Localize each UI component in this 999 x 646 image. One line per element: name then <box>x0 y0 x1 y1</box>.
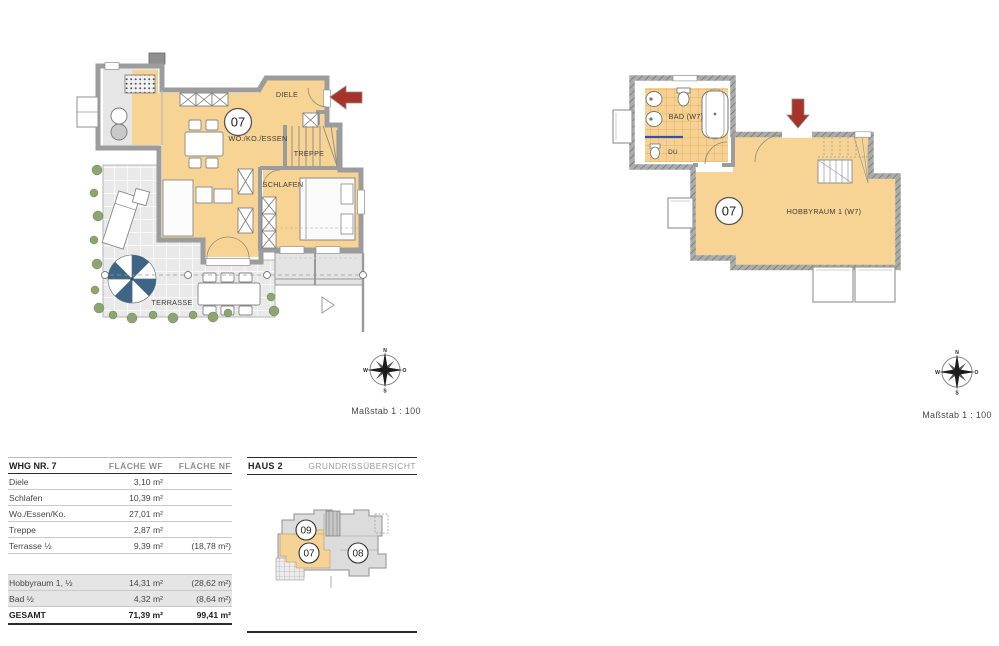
compass-star-main <box>367 352 403 388</box>
room-label-schlafen: SCHLAFEN <box>263 180 304 189</box>
kitchen-sink <box>111 108 127 124</box>
scale-label-left: Maßstab 1 : 100 <box>341 406 431 416</box>
area-table-wrap: WHG NR. 7 FLÄCHE WF FLÄCHE NF Diele 3,10… <box>8 457 232 625</box>
scale-label-right: Maßstab 1 : 100 <box>913 410 999 420</box>
mini-unit08-number: 08 <box>352 549 364 560</box>
row-wf: 14,31 m² <box>104 575 164 591</box>
row-wf: 9,39 m² <box>104 538 164 554</box>
room-label-hobbyraum: HOBBYRAUM 1 (W7) <box>787 207 862 216</box>
row-nf: (8,64 m²) <box>164 591 232 607</box>
side-table <box>132 188 149 205</box>
table-row: Diele 3,10 m² <box>8 474 232 490</box>
overview-header: HAUS 2 GRUNDRISSÜBERSICHT <box>247 457 417 475</box>
floor-plan-basement: 07 BAD (W7) DU HOBBYRAUM 1 (W7) <box>610 65 910 315</box>
room-label-bad: BAD (W7) <box>669 112 704 121</box>
compass-w: W <box>363 368 368 374</box>
compass-n: N <box>383 348 387 354</box>
section-marker-triangle <box>322 297 334 313</box>
table-spacer-row <box>8 554 232 575</box>
row-wf: 27,01 m² <box>104 506 164 522</box>
overview-panel: HAUS 2 GRUNDRISSÜBERSICHT <box>247 457 417 475</box>
row-label: Hobbyraum 1, ½ <box>8 575 104 591</box>
room-label-wohnen: WO./KO./ESSEN <box>228 134 287 143</box>
col-header-wf: FLÄCHE WF <box>104 458 164 474</box>
outdoor-dining <box>198 273 260 315</box>
compass-rose-right: N O S W <box>934 349 980 395</box>
table-row: Wo./Essen/Ko. 27,01 m² <box>8 506 232 522</box>
area-table: WHG NR. 7 FLÄCHE WF FLÄCHE NF Diele 3,10… <box>8 457 232 625</box>
row-wf: 4,32 m² <box>104 591 164 607</box>
overview-bottom-rule <box>247 631 417 633</box>
compass-rose-left: N O S W <box>362 347 408 393</box>
compass-n: N <box>955 350 959 356</box>
unit-badge-number: 07 <box>722 204 736 219</box>
total-nf: 99,41 m² <box>164 607 232 624</box>
overview-mini-plan: 09 07 08 <box>274 506 392 590</box>
entrance-arrow-icon <box>330 86 362 109</box>
row-wf: 10,39 m² <box>104 490 164 506</box>
room-label-du: DU <box>668 149 678 156</box>
toilet <box>677 88 690 106</box>
mini-unit07-number: 07 <box>303 549 315 560</box>
mini-unit09-number: 09 <box>300 526 312 537</box>
floor-plan-sheet: 07 DIELE WO./KO./ESSEN TREPPE SCHLAFEN T… <box>0 0 999 646</box>
room-label-diele: DIELE <box>276 90 298 99</box>
overview-title: HAUS 2 <box>248 461 283 471</box>
compass-w: W <box>935 370 940 376</box>
compass-star-main <box>939 354 975 390</box>
table-row: Bad ½ 4,32 m² (8,64 m²) <box>8 591 232 607</box>
col-header-nf: FLÄCHE NF <box>164 458 232 474</box>
row-label: Treppe <box>8 522 104 538</box>
kitchen-basin <box>111 124 127 140</box>
row-nf <box>164 474 232 490</box>
row-wf: 2,87 m² <box>104 522 164 538</box>
row-label: Diele <box>8 474 104 490</box>
table-row: Terrasse ½ 9,39 m² (18,78 m²) <box>8 538 232 554</box>
compass-o: O <box>403 368 407 374</box>
row-label: Schlafen <box>8 490 104 506</box>
room-label-treppe: TREPPE <box>294 149 325 158</box>
row-nf <box>164 490 232 506</box>
unit-badge-number: 07 <box>231 115 245 130</box>
balcony-area <box>275 253 363 332</box>
row-nf <box>164 522 232 538</box>
bed <box>300 178 355 240</box>
compass-o: O <box>975 370 979 376</box>
mini-stair-core <box>326 511 340 536</box>
table-row: Hobbyraum 1, ½ 14,31 m² (28,62 m²) <box>8 575 232 591</box>
table-total-row: GESAMT 71,39 m² 99,41 m² <box>8 607 232 624</box>
total-label: GESAMT <box>8 607 104 624</box>
shower-toilet <box>650 144 660 159</box>
row-label: Terrasse ½ <box>8 538 104 554</box>
row-wf: 3,10 m² <box>104 474 164 490</box>
cooktop <box>125 75 155 93</box>
parasol <box>108 255 156 303</box>
room-label-terrasse: TERRASSE <box>151 298 192 307</box>
row-nf <box>164 506 232 522</box>
table-header-row: WHG NR. 7 FLÄCHE WF FLÄCHE NF <box>8 458 232 474</box>
overview-subtitle: GRUNDRISSÜBERSICHT <box>308 461 416 471</box>
compass-s: S <box>383 389 387 394</box>
chimney <box>149 53 165 64</box>
table-row: Treppe 2,87 m² <box>8 522 232 538</box>
entrance-arrow-icon <box>787 99 809 128</box>
bathtub <box>702 89 728 139</box>
row-nf: (18,78 m²) <box>164 538 232 554</box>
floor-plan-ground: 07 DIELE WO./KO./ESSEN TREPPE SCHLAFEN T… <box>75 50 415 340</box>
row-label: Wo./Essen/Ko. <box>8 506 104 522</box>
col-header-unit: WHG NR. 7 <box>8 458 104 474</box>
row-label: Bad ½ <box>8 591 104 607</box>
table-row: Schlafen 10,39 m² <box>8 490 232 506</box>
row-nf: (28,62 m²) <box>164 575 232 591</box>
total-wf: 71,39 m² <box>104 607 164 624</box>
compass-s: S <box>955 391 959 396</box>
